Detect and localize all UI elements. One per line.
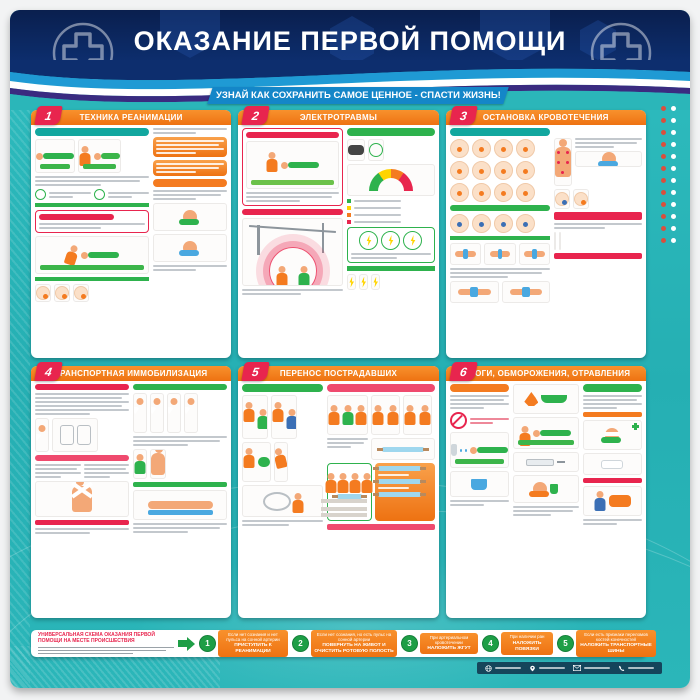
warning-box — [35, 210, 149, 233]
phone-icon — [618, 665, 625, 672]
step-action: НАЛОЖИТЬ ПОВЯЗКИ — [504, 641, 550, 653]
footer-phone — [618, 665, 654, 672]
step-action: ПРИСТУПИТЬ К РЕАНИМАЦИИ — [221, 643, 285, 655]
step-box: При наличии ран НАЛОЖИТЬ ПОВЯЗКИ — [501, 632, 553, 654]
foot-in-bucket-illustration — [450, 471, 509, 497]
text-lines — [35, 528, 129, 534]
head-bandage-illustration — [583, 420, 642, 450]
drink-water-illustration — [513, 475, 578, 503]
text-lines — [351, 253, 431, 259]
divider-bar — [35, 520, 129, 525]
body-pressure-points-diagram — [554, 138, 572, 186]
panels-grid: 1 ТЕХНИКА РЕАНИМАЦИИ — [31, 110, 646, 618]
panel-carrying-victims: 5 ПЕРЕНОС ПОСТРАДАВШИХ — [238, 366, 438, 618]
panel-body — [242, 384, 434, 614]
text-lines — [246, 192, 339, 202]
flame-illustration — [513, 384, 578, 414]
section-header-bar — [35, 384, 129, 390]
scheme-intro: УНИВЕРСАЛЬНАЯ СХЕМА ОКАЗАНИЯ ПЕРВОЙ ПОМО… — [38, 633, 174, 654]
rescue-box — [242, 128, 343, 206]
text-lines — [378, 474, 432, 476]
warm-blanket-illustration — [583, 486, 642, 516]
panel-transport-immobilization: 4 ТРАНСПОРТНАЯ ИММОБИЛИЗАЦИЯ — [31, 366, 231, 618]
section-header-bar — [133, 482, 227, 487]
warning-strip — [327, 524, 435, 530]
legend-row — [347, 206, 435, 210]
divider-bar — [35, 277, 149, 281]
text-lines — [583, 395, 642, 409]
footer-website — [485, 665, 521, 672]
stairs-carry-illustration — [327, 463, 372, 521]
chest-compression-illustration — [35, 236, 149, 274]
voltage-gauge-illustration — [347, 164, 435, 196]
divider-bar — [450, 236, 551, 240]
tourniquet-illustration — [519, 243, 551, 265]
arm-sling-illustration — [35, 418, 49, 452]
step-condition: При наличии ран — [504, 634, 550, 639]
footer-contacts-bar — [477, 662, 662, 674]
tourniquet-illustration — [502, 281, 551, 303]
step-action: ПОВЕРНУТЬ НА ЖИВОТ И ОЧИСТИТЬ РОТОВУЮ ПО… — [314, 643, 394, 655]
back-bandage-illustration — [35, 481, 129, 517]
carry-in-arms-illustration — [242, 395, 268, 439]
lightning-icon — [403, 231, 422, 250]
poster-title: ОКАЗАНИЕ ПЕРВОЙ ПОМОЩИ — [10, 26, 690, 57]
scheme-title: УНИВЕРСАЛЬНАЯ СХЕМА ОКАЗАНИЯ ПЕРВОЙ ПОМО… — [38, 633, 174, 645]
text-lines — [133, 436, 227, 446]
text-lines — [450, 395, 509, 409]
step-illustration — [347, 274, 356, 290]
panel-burns-frostbite-poisoning: 6 ОЖОГИ, ОБМОРОЖЕНИЯ, ОТРАВЛЕНИЯ — [446, 366, 646, 618]
carry-on-back-illustration — [271, 395, 297, 439]
text-lines — [35, 393, 129, 415]
warning-strip — [554, 212, 642, 220]
globe-icon — [485, 665, 492, 672]
panel-number-badge: 4 — [34, 362, 62, 381]
check-icon — [94, 189, 105, 200]
footer-email — [573, 665, 610, 671]
text-lines — [156, 163, 224, 173]
subtitle-text: УЗНАЙ КАК СОХРАНИТЬ САМОЕ ЦЕННОЕ - СПАСТ… — [216, 90, 501, 101]
text-lines — [153, 265, 227, 271]
limb-bandage-illustration — [554, 232, 556, 250]
text-lines — [84, 464, 130, 478]
first-aid-poster: ОКАЗАНИЕ ПЕРВОЙ ПОМОЩИ УЗНАЙ КАК СОХРАНИ… — [10, 10, 690, 688]
scheme-step: 1 Если нет сознания и нет пульса на сонн… — [199, 630, 288, 657]
sling-variant-illustration — [167, 393, 181, 433]
tourniquet-illustration — [450, 281, 499, 303]
hand-position-illustration — [73, 284, 89, 302]
shoulder-carry-illustration — [274, 442, 288, 482]
tourniquet-illustration — [450, 243, 482, 265]
stretcher-types-box — [375, 463, 435, 521]
pressure-points-grid — [450, 139, 551, 202]
pull-victim-from-wire-illustration — [246, 141, 339, 189]
panel-electrical-injuries: 2 ЭЛЕКТРОТРАВМЫ — [238, 110, 438, 358]
text-lines — [153, 128, 227, 134]
section-header-bar — [242, 209, 343, 215]
scheme-step: 4 При наличии ран НАЛОЖИТЬ ПОВЯЗКИ — [482, 632, 553, 654]
panel-body — [450, 128, 642, 354]
footer-address — [529, 665, 565, 672]
text-lines — [242, 289, 343, 295]
sling-variant-illustration — [184, 393, 198, 433]
universal-scheme-bar: УНИВЕРСАЛЬНАЯ СХЕМА ОКАЗАНИЯ ПЕРВОЙ ПОМО… — [31, 630, 646, 657]
neck-pressure-illustration — [575, 151, 642, 167]
panel-stop-bleeding: 3 ОСТАНОВКА КРОВОТЕЧЕНИЯ — [446, 110, 646, 358]
text-lines — [583, 519, 642, 525]
step-condition: Если есть признаки переломов костей коне… — [579, 632, 653, 643]
panel-body — [450, 384, 642, 614]
cpr-position-illustration — [35, 139, 75, 173]
text-lines — [39, 223, 145, 229]
instruction-box — [153, 160, 227, 176]
two-person-carry-illustration — [327, 395, 368, 435]
head-tilt-illustration — [153, 203, 227, 231]
leg-splint-illustration — [133, 490, 227, 520]
warning-header-bar — [39, 214, 114, 220]
two-person-carry-illustration — [403, 395, 432, 435]
animal-illustration — [347, 139, 365, 161]
panel-body — [35, 384, 227, 614]
pressure-point-icon — [450, 214, 469, 233]
step-box: При артериальном кровотечении НАЛОЖИТЬ Ж… — [420, 633, 478, 654]
text-lines — [554, 223, 642, 229]
foot-bandage-illustration — [583, 453, 642, 475]
section-header-bar — [35, 455, 129, 461]
step-number-circle: 1 — [199, 635, 216, 652]
step-box: Если нет сознания и нет пульса на сонной… — [218, 630, 288, 657]
stretcher-illustration — [371, 438, 435, 460]
email-icon — [573, 665, 581, 671]
step-box: Если есть признаки переломов костей коне… — [576, 630, 656, 657]
splint-shapes-illustration — [52, 418, 98, 452]
text-lines — [35, 176, 149, 186]
safe-voltage-illustration — [368, 139, 384, 161]
text-lines — [327, 438, 368, 460]
location-pin-icon — [529, 665, 536, 672]
divider-bar — [347, 266, 435, 271]
section-header-bar — [450, 128, 551, 136]
strap-coil-illustration — [242, 485, 323, 517]
sling-variant-illustration — [150, 393, 164, 433]
fallen-power-line-illustration — [242, 218, 343, 286]
piggyback-carry-illustration — [242, 442, 271, 482]
scheme-step: 5 Если есть признаки переломов костей ко… — [557, 630, 656, 657]
text-lines — [470, 418, 509, 424]
sling-variant-illustration — [133, 393, 147, 433]
head-tilt-illustration — [153, 234, 227, 262]
text-lines — [38, 647, 174, 655]
divider-bar — [35, 203, 149, 207]
shoulder-wrap-illustration — [150, 449, 166, 479]
section-header-bar — [133, 384, 227, 390]
scheme-step: 2 Если нет сознания, но есть пульс на со… — [292, 630, 397, 657]
section-header-bar — [347, 128, 435, 136]
panel-number-badge: 3 — [449, 106, 477, 125]
step-box: Если нет сознания, но есть пульс на сонн… — [311, 630, 397, 657]
shoulder-wrap-illustration — [133, 449, 147, 479]
prohibition-icon — [450, 412, 467, 429]
step-action: НАЛОЖИТЬ ТРАНСПОРТНЫЕ ШИНЫ — [579, 643, 653, 655]
section-header-bar — [242, 384, 323, 392]
green-arrow-icon — [178, 637, 195, 651]
text-lines — [575, 138, 642, 148]
step-illustration — [359, 274, 368, 290]
text-lines — [378, 487, 432, 489]
section-header-bar — [583, 412, 642, 417]
bandage-illustration — [554, 189, 570, 209]
step-condition: При артериальном кровотечении — [423, 635, 475, 646]
lightning-icon — [381, 231, 400, 250]
text-lines — [513, 506, 578, 516]
hand-position-illustration — [54, 284, 70, 302]
instruction-box — [153, 137, 227, 157]
section-header-bar — [35, 128, 149, 136]
step-voltage-box — [347, 227, 435, 263]
text-lines — [156, 140, 224, 154]
step-number-circle: 3 — [401, 635, 418, 652]
warning-header-bar — [246, 132, 339, 138]
text-lines — [242, 520, 323, 526]
dots-decor-column — [661, 106, 676, 243]
tourniquet-illustration — [484, 243, 516, 265]
panel-number-badge: 1 — [34, 106, 62, 125]
warning-strip — [583, 478, 642, 483]
two-person-carry-illustration — [371, 395, 400, 435]
section-header-bar — [153, 179, 227, 187]
text-lines — [49, 192, 91, 198]
lightning-icon — [359, 231, 378, 250]
text-lines — [108, 192, 150, 198]
step-condition: Если нет сознания и нет пульса на сонной… — [221, 632, 285, 643]
step-action: НАЛОЖИТЬ ЖГУТ — [423, 646, 475, 652]
text-lines — [153, 190, 227, 200]
pressure-point-icon — [494, 214, 513, 233]
text-lines — [133, 523, 227, 533]
step-number-circle: 2 — [292, 635, 309, 652]
check-icon — [35, 189, 46, 200]
limb-bandage-illustration — [559, 232, 561, 250]
pressure-point-icon — [516, 214, 535, 233]
scheme-step: 3 При артериальном кровотечении НАЛОЖИТЬ… — [401, 633, 478, 654]
cool-burn-with-water-illustration — [450, 432, 509, 468]
section-header-bar — [327, 384, 435, 392]
panel-number-badge: 6 — [449, 362, 477, 381]
text-lines — [450, 268, 551, 278]
panel-body — [35, 128, 227, 354]
section-header-bar — [583, 384, 642, 392]
step-illustration — [371, 274, 380, 290]
legend-row — [347, 213, 435, 217]
bandage-illustration — [573, 189, 589, 209]
section-header-bar — [450, 384, 509, 392]
step-number-circle: 4 — [482, 635, 499, 652]
section-header-bar — [450, 205, 551, 211]
subtitle-ribbon: УЗНАЙ КАК СОХРАНИТЬ САМОЕ ЦЕННОЕ - СПАСТ… — [207, 87, 509, 104]
warning-strip — [554, 253, 642, 259]
panel-resuscitation: 1 ТЕХНИКА РЕАНИМАЦИИ — [31, 110, 231, 358]
text-lines — [35, 464, 81, 478]
legend-row — [347, 220, 435, 224]
syringe-illustration — [513, 452, 578, 472]
lay-victim-down-illustration — [513, 417, 578, 449]
step-number-circle: 5 — [557, 635, 574, 652]
hand-position-illustration — [35, 284, 51, 302]
pressure-point-icon — [472, 214, 491, 233]
text-lines — [450, 500, 509, 506]
cpr-position-illustration — [78, 139, 121, 173]
legend-row — [347, 199, 435, 203]
panel-body — [242, 128, 434, 354]
step-condition: Если нет сознания, но есть пульс на сонн… — [314, 632, 394, 643]
